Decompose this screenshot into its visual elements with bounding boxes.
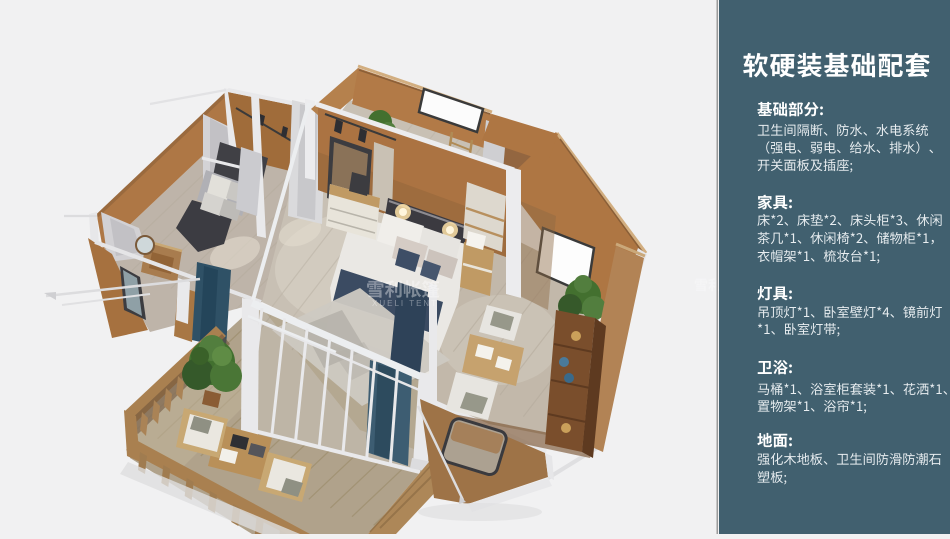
svg-text:XUELI TENT: XUELI TENT [372, 299, 438, 308]
